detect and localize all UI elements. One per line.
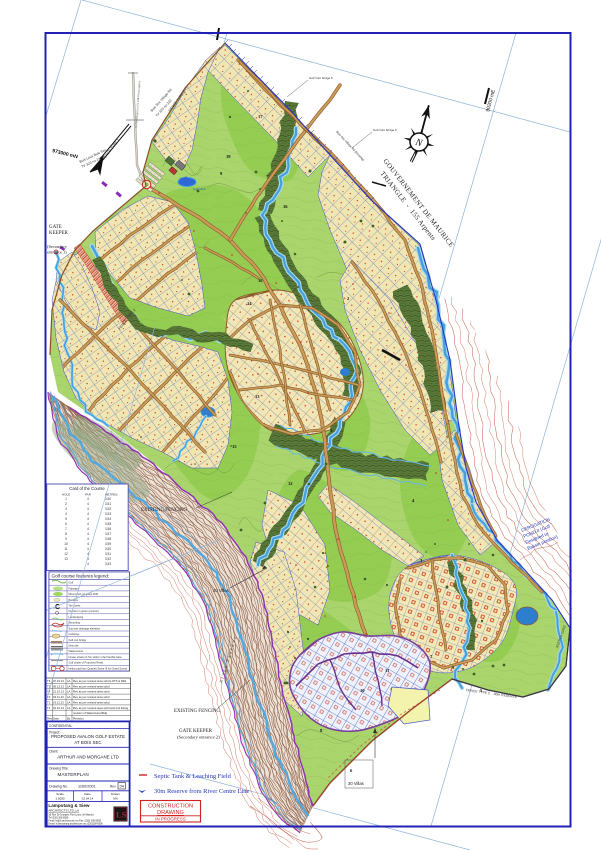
svg-text:Watercourse: Watercourse [69, 649, 84, 653]
svg-text:Golf Cart bridge 5: Golf Cart bridge 5 [309, 76, 333, 80]
svg-text:Date: Date [53, 717, 59, 721]
svg-text:4: 4 [87, 522, 89, 526]
svg-text:3,53: 3,53 [105, 562, 111, 566]
svg-text:T2: T2 [47, 700, 51, 704]
svg-text:Helico pad from Quatres Soeur: Helico pad from Quatres Soeur III for Gr… [69, 666, 128, 670]
svg-text:Bois Sec Village Rd (Existing): Bois Sec Village Rd (Existing) [335, 130, 365, 162]
svg-text:3,50: 3,50 [105, 497, 111, 501]
svg-text:4: 4 [87, 517, 89, 521]
svg-text:3,56: 3,56 [105, 527, 111, 531]
svg-text:15: 15 [232, 444, 237, 449]
svg-text:LA: LA [67, 679, 71, 683]
svg-text:MASTERPLAN: MASTERPLAN [58, 772, 89, 777]
svg-text:5: 5 [65, 517, 67, 521]
svg-text:MA: MA [113, 797, 118, 801]
svg-text:04: 04 [120, 785, 124, 789]
svg-text:(Secondary entrance 2): (Secondary entrance 2) [177, 735, 220, 740]
svg-text:LA: LA [67, 690, 71, 694]
svg-text:1:5000: 1:5000 [55, 797, 65, 801]
svg-text:1160/2001: 1160/2001 [78, 785, 96, 789]
svg-text:Tee boxes: Tee boxes [69, 604, 82, 608]
svg-text:10: 10 [64, 542, 68, 546]
svg-text:21.10.13: 21.10.13 [53, 690, 64, 694]
svg-text:7: 7 [65, 527, 67, 531]
svg-text:ARCHITECTS LTD.,LA: ARCHITECTS LTD.,LA [48, 808, 79, 812]
svg-text:T1: T1 [47, 706, 51, 710]
svg-text:GATE: GATE [49, 225, 62, 230]
svg-text:House streets (1.5m wide) in t: House streets (1.5m wide) in the Flexibl… [69, 655, 123, 659]
svg-text:LA: LA [67, 695, 71, 699]
svg-text:18: 18 [226, 154, 231, 159]
svg-text:IN PROGRESS: IN PROGRESS [155, 817, 186, 822]
svg-text:05.12.13: 05.12.13 [53, 684, 64, 688]
svg-text:New site: New site [69, 644, 80, 648]
svg-text:4: 4 [87, 497, 89, 501]
svg-text:EXISTING FENCING: EXISTING FENCING [141, 508, 187, 513]
svg-text:9: 9 [65, 537, 67, 541]
svg-text:revision of Watermans Bldg: revision of Watermans Bldg [73, 711, 108, 715]
svg-text:KEEPER: KEEPER [49, 231, 69, 236]
svg-text:4: 4 [87, 542, 89, 546]
svg-text:Mounding: Mounding [69, 621, 81, 625]
svg-text:11: 11 [64, 547, 68, 551]
svg-text:4: 4 [87, 537, 89, 541]
svg-text:Rev as per revised area schd: Rev as per revised area schd [73, 690, 110, 694]
svg-text:Drawn: Drawn [111, 792, 120, 796]
svg-text:LA: LA [67, 706, 71, 710]
svg-text:6: 6 [350, 768, 353, 773]
svg-text:16: 16 [283, 204, 288, 209]
svg-text:19.11.13: 19.11.13 [53, 700, 64, 704]
svg-text:Cartways: Cartways [69, 632, 81, 636]
svg-text:(Secondary: (Secondary [47, 244, 68, 249]
svg-text:2: 2 [65, 502, 67, 506]
svg-text:6: 6 [65, 522, 67, 526]
svg-text:13: 13 [64, 557, 68, 561]
svg-text:Date: Date [84, 792, 91, 796]
svg-text:3: 3 [65, 507, 67, 511]
svg-text:4: 4 [87, 512, 89, 516]
svg-text:30m Reserve from River Centre: 30m Reserve from River Centre Line [154, 788, 249, 795]
svg-text:Email: ls.lampotang.architectu: Email: ls.lampotang.architecture.mu (230… [48, 823, 103, 826]
svg-text:13: 13 [255, 394, 260, 399]
svg-text:Card of the Course: Card of the Course [69, 486, 105, 491]
svg-text:3,51: 3,51 [105, 552, 111, 556]
svg-text:Septic Tank & Leaching Field: Septic Tank & Leaching Field [154, 773, 232, 780]
svg-text:14: 14 [247, 301, 252, 306]
svg-text:4: 4 [87, 527, 89, 531]
svg-text:4: 4 [87, 547, 89, 551]
svg-text:12: 12 [64, 552, 68, 556]
svg-text:30 Villas: 30 Villas [348, 781, 364, 786]
svg-text:Golf chalet of Proposed Resid.: Golf chalet of Proposed Resid. [69, 661, 104, 665]
svg-text:LS: LS [116, 810, 127, 820]
svg-text:4: 4 [65, 512, 67, 516]
svg-text:Golf cart bridge: Golf cart bridge [69, 638, 87, 642]
svg-text:Drawing No.: Drawing No. [49, 785, 68, 789]
svg-text:ARTHUR AND MORGANE LTD: ARTHUR AND MORGANE LTD [57, 755, 119, 760]
svg-text:PAR: PAR [85, 493, 92, 497]
svg-text:11: 11 [385, 668, 390, 673]
svg-text:AT BOIS SEC: AT BOIS SEC [74, 740, 101, 745]
svg-text:3,57: 3,57 [105, 532, 111, 536]
svg-text:Golf Cart bridge 6: Golf Cart bridge 6 [373, 128, 397, 132]
svg-text:3,53: 3,53 [105, 512, 111, 516]
svg-text:12: 12 [288, 481, 293, 486]
svg-text:Client:: Client: [49, 749, 58, 753]
svg-text:3,55: 3,55 [105, 522, 111, 526]
svg-text:10: 10 [360, 688, 365, 693]
svg-text:Rev as per revised area schd: Rev as per revised area schd [73, 695, 110, 699]
svg-text:4: 4 [87, 562, 89, 566]
svg-text:4: 4 [87, 532, 89, 536]
svg-text:Rev as per revised area schd: Rev as per revised area schd [73, 700, 110, 704]
svg-text:Fairways: Fairways [69, 586, 80, 590]
svg-text:30 Villas: 30 Villas [213, 588, 229, 593]
svg-text:entrance 1): entrance 1) [47, 250, 67, 255]
svg-text:Revision: Revision [73, 717, 84, 721]
svg-text:3,58: 3,58 [105, 537, 111, 541]
svg-text:8: 8 [65, 532, 67, 536]
svg-text:4: 4 [87, 502, 89, 506]
svg-text:3,54: 3,54 [105, 517, 111, 521]
svg-text:01.10.13: 01.10.13 [53, 706, 64, 710]
svg-text:Rev as per revised area schd: Rev as per revised area schd [73, 684, 110, 688]
svg-text:Rev as per revised area schd a: Rev as per revised area schd and unit li… [73, 706, 128, 710]
svg-text:Scale: Scale [56, 792, 64, 796]
svg-text:HOLE: HOLE [62, 493, 70, 497]
svg-text:CONFIDENTIAL: CONFIDENTIAL [49, 724, 73, 728]
svg-text:Golf: Golf [69, 581, 74, 585]
svg-text:Rev: Rev [110, 785, 116, 789]
svg-text:Summer drainage elevation: Summer drainage elevation [69, 626, 101, 630]
svg-text:Drawing Title:: Drawing Title: [49, 766, 68, 770]
svg-text:LA: LA [67, 684, 71, 688]
svg-text:T6: T6 [47, 679, 51, 683]
svg-text:07.01.14: 07.01.14 [53, 679, 64, 683]
svg-text:3,59: 3,59 [105, 542, 111, 546]
svg-text:17: 17 [258, 114, 263, 119]
svg-text:LA: LA [67, 700, 71, 704]
svg-text:DRAWING: DRAWING [157, 810, 184, 816]
svg-text:4: 4 [87, 507, 89, 511]
svg-text:GATE KEEPER: GATE KEEPER [179, 729, 213, 734]
svg-text:METRES: METRES [105, 493, 118, 497]
svg-text:Golf Club: Golf Club [193, 187, 206, 191]
svg-text:CONSTRUCTION: CONSTRUCTION [148, 804, 193, 810]
svg-text:Number in green (contour): Number in green (contour) [69, 609, 100, 613]
svg-text:Golf course features legend:: Golf course features legend: [52, 574, 110, 579]
svg-text:3,52: 3,52 [105, 557, 111, 561]
svg-text:04.11.13: 04.11.13 [53, 695, 64, 699]
svg-text:EXISTING FENCING: EXISTING FENCING [174, 709, 220, 714]
svg-text:3,51: 3,51 [105, 502, 111, 506]
svg-text:3,50: 3,50 [105, 547, 111, 551]
svg-text:16: 16 [258, 278, 263, 283]
svg-text:1: 1 [65, 497, 67, 501]
svg-text:973000 mN: 973000 mN [52, 148, 79, 160]
svg-text:Bunkers: Bunkers [69, 598, 79, 602]
svg-text:Rev as per revised area schd L: Rev as per revised area schd LOTS & RD1 [73, 679, 127, 683]
svg-text:PROPOSED AVALON GOLF ESTATE: PROPOSED AVALON GOLF ESTATE [51, 734, 125, 739]
svg-text:Rev: Rev [47, 717, 53, 721]
svg-text:02.04.14: 02.04.14 [82, 797, 94, 801]
svg-text:3,52: 3,52 [105, 507, 111, 511]
